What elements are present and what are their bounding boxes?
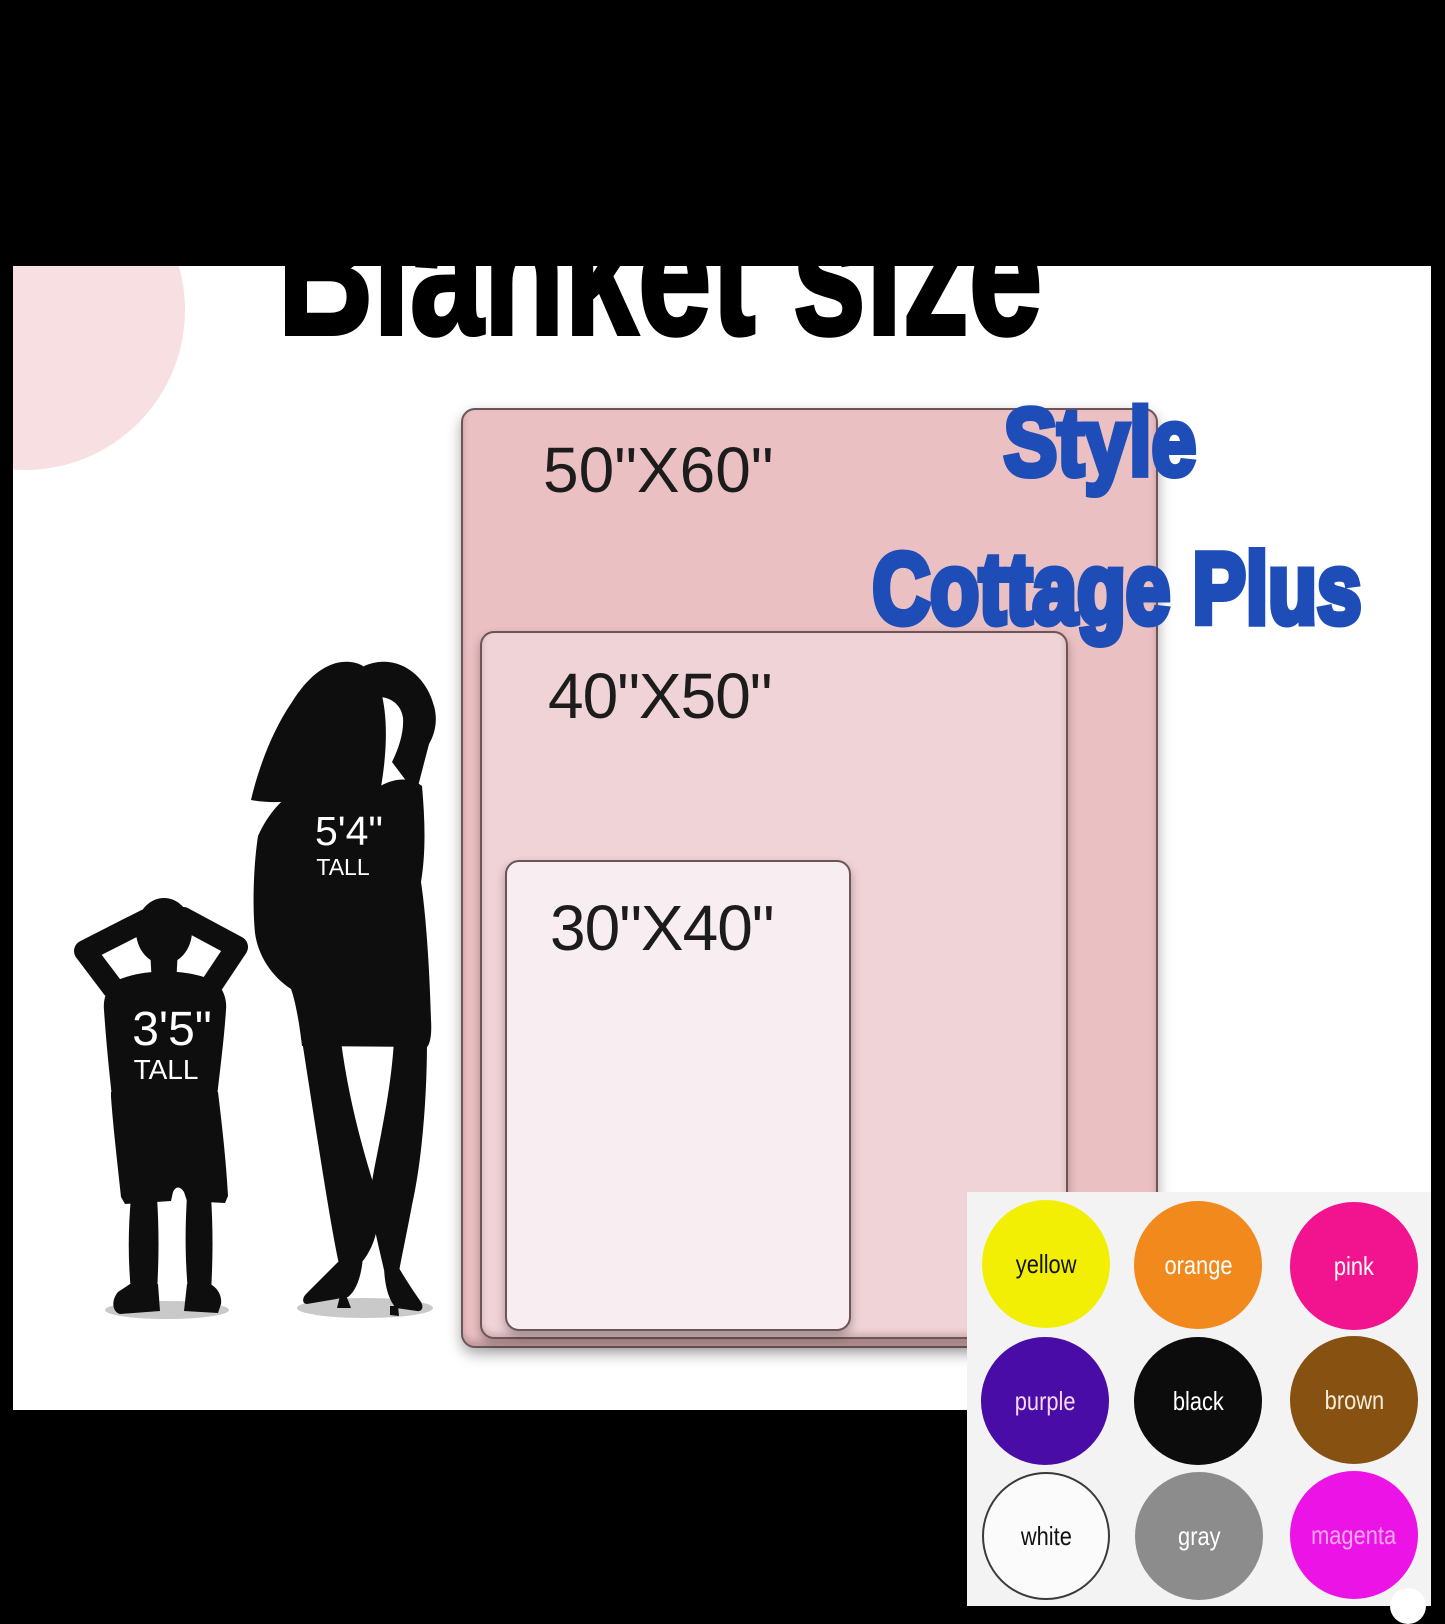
svg-text:5'4": 5'4" (315, 808, 383, 854)
svg-text:TALL: TALL (316, 854, 369, 880)
svg-text:TALL: TALL (134, 1054, 199, 1085)
svg-text:3'5": 3'5" (132, 1003, 212, 1056)
